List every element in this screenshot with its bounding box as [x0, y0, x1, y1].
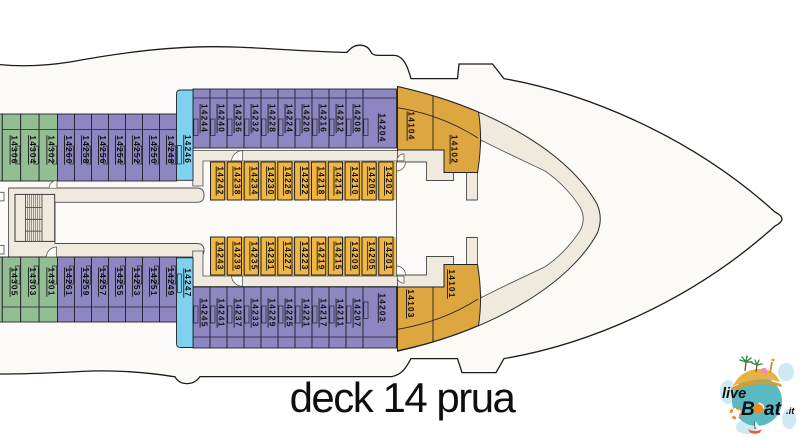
- svg-text:14253: 14253: [132, 267, 142, 296]
- svg-text:14230: 14230: [266, 166, 276, 195]
- svg-text:14232: 14232: [251, 104, 261, 133]
- svg-text:14215: 14215: [333, 241, 343, 270]
- svg-text:14219: 14219: [317, 241, 327, 270]
- svg-text:14210: 14210: [350, 166, 360, 195]
- svg-text:14257: 14257: [98, 267, 108, 296]
- svg-text:14223: 14223: [300, 241, 310, 270]
- svg-text:14212: 14212: [336, 104, 346, 133]
- svg-text:.it: .it: [786, 406, 795, 417]
- svg-text:14234: 14234: [249, 166, 259, 195]
- svg-text:14207: 14207: [353, 298, 363, 327]
- svg-text:14229: 14229: [268, 298, 278, 327]
- svg-text:14222: 14222: [300, 166, 310, 195]
- svg-text:14206: 14206: [367, 166, 377, 195]
- svg-text:14239: 14239: [232, 241, 242, 270]
- svg-text:14209: 14209: [350, 241, 360, 270]
- svg-text:14260: 14260: [64, 135, 74, 164]
- svg-text:14208: 14208: [353, 104, 363, 133]
- svg-text:14211: 14211: [336, 299, 346, 328]
- svg-text:at: at: [764, 399, 782, 420]
- svg-text:14304: 14304: [28, 135, 38, 164]
- svg-text:14202: 14202: [384, 166, 394, 195]
- svg-text:14237: 14237: [234, 298, 244, 327]
- svg-text:14226: 14226: [283, 166, 293, 195]
- svg-text:14241: 14241: [217, 298, 227, 327]
- svg-text:14305: 14305: [10, 267, 20, 296]
- svg-text:14251: 14251: [149, 267, 159, 296]
- svg-text:14235: 14235: [249, 241, 259, 270]
- svg-text:14301: 14301: [46, 267, 56, 296]
- svg-text:14238: 14238: [232, 166, 242, 195]
- svg-text:14221: 14221: [302, 298, 312, 327]
- svg-text:14102: 14102: [450, 135, 460, 164]
- svg-text:14201: 14201: [384, 241, 394, 270]
- svg-text:14248: 14248: [166, 135, 176, 164]
- svg-text:14217: 14217: [319, 298, 329, 327]
- svg-text:14104: 14104: [407, 111, 417, 140]
- svg-text:14214: 14214: [333, 166, 343, 195]
- svg-text:14244: 14244: [200, 104, 210, 133]
- svg-text:14236: 14236: [234, 104, 244, 133]
- svg-text:14247: 14247: [183, 268, 193, 297]
- svg-text:14259: 14259: [81, 267, 91, 296]
- svg-text:14256: 14256: [98, 135, 108, 164]
- svg-text:14205: 14205: [367, 241, 377, 270]
- svg-text:14255: 14255: [115, 267, 125, 296]
- svg-text:14258: 14258: [81, 135, 91, 164]
- svg-text:14103: 14103: [406, 289, 416, 318]
- svg-text:14204: 14204: [378, 113, 388, 142]
- svg-text:14243: 14243: [216, 241, 226, 270]
- svg-text:14254: 14254: [115, 135, 125, 164]
- svg-text:14306: 14306: [10, 135, 20, 164]
- svg-text:14303: 14303: [28, 267, 38, 296]
- svg-text:14240: 14240: [217, 104, 227, 133]
- svg-text:14101: 14101: [447, 269, 457, 298]
- svg-text:14227: 14227: [283, 241, 293, 270]
- svg-text:14218: 14218: [317, 166, 327, 195]
- svg-text:14250: 14250: [149, 135, 159, 164]
- svg-text:14245: 14245: [200, 298, 210, 327]
- svg-text:14302: 14302: [46, 135, 56, 164]
- svg-text:14216: 14216: [319, 104, 329, 133]
- svg-text:14220: 14220: [302, 104, 312, 133]
- svg-text:14203: 14203: [378, 293, 388, 322]
- svg-text:deck 14 prua: deck 14 prua: [290, 374, 517, 421]
- svg-text:14249: 14249: [166, 267, 176, 296]
- svg-text:14231: 14231: [266, 241, 276, 270]
- svg-text:14233: 14233: [251, 298, 261, 327]
- svg-text:14242: 14242: [216, 166, 226, 195]
- svg-text:14252: 14252: [132, 135, 142, 164]
- svg-text:14261: 14261: [64, 267, 74, 296]
- svg-text:14224: 14224: [285, 104, 295, 133]
- svg-text:14246: 14246: [183, 135, 193, 164]
- svg-text:14228: 14228: [268, 104, 278, 133]
- svg-text:14225: 14225: [285, 298, 295, 327]
- svg-text:B: B: [741, 399, 755, 420]
